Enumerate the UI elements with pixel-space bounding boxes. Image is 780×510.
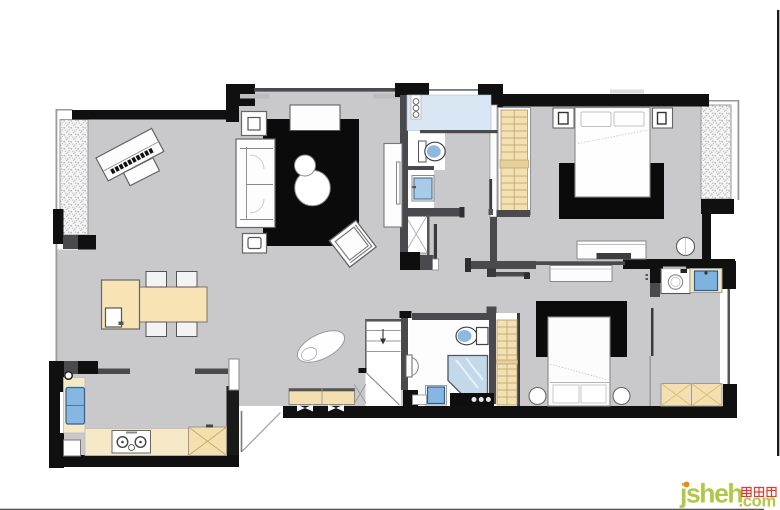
- svg-text:.com: .com: [739, 493, 776, 510]
